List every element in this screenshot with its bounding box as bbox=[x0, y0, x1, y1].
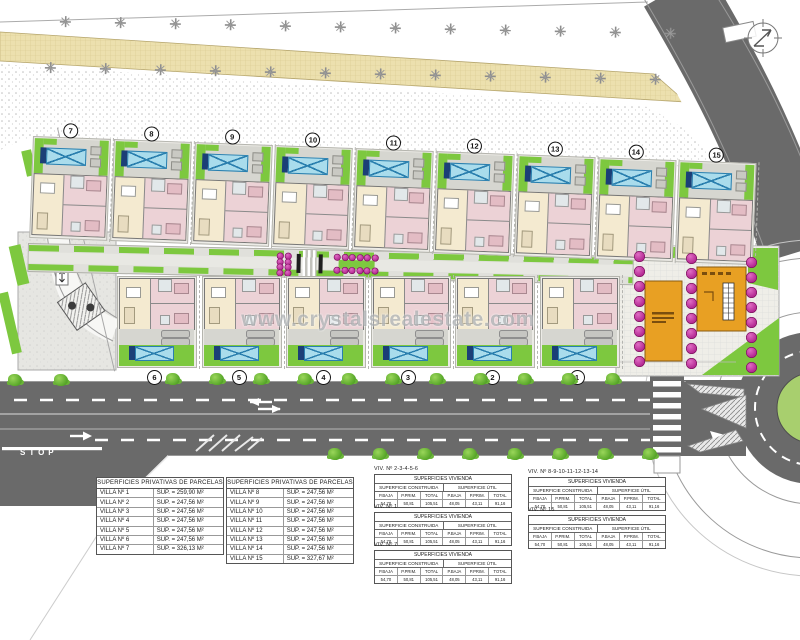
surface-cell: SUP. = 326,13 M² bbox=[154, 545, 223, 553]
bed bbox=[259, 283, 274, 294]
bush-icon bbox=[474, 373, 488, 385]
bush-icon bbox=[598, 448, 612, 460]
pool-icon bbox=[207, 154, 248, 172]
furniture bbox=[201, 188, 216, 200]
tree-icon bbox=[485, 70, 496, 81]
group-header: SUPERFICIE CONSTRUIDA bbox=[529, 525, 598, 532]
patio-furniture bbox=[413, 158, 424, 167]
bed bbox=[327, 229, 342, 241]
flowering-tree-icon bbox=[746, 272, 757, 283]
flowering-tree-icon bbox=[746, 257, 757, 268]
bush-row bbox=[328, 448, 688, 460]
furniture bbox=[295, 287, 310, 298]
table-title: SUPERFICIES VIVIENDA bbox=[375, 475, 511, 484]
table-title: SUPERFICIES PRIVATIVAS DE PARCELAS bbox=[97, 478, 223, 489]
surface-cell: SUP. = 247,56 M² bbox=[284, 498, 353, 506]
bed bbox=[165, 223, 180, 235]
tree-icon bbox=[320, 67, 331, 78]
surface-cell: SUP. = 247,56 M² bbox=[154, 517, 223, 525]
bathroom bbox=[393, 234, 403, 244]
table-row: VILLA Nº 14 SUP. = 247,56 M² bbox=[227, 544, 353, 553]
tree-icon bbox=[45, 62, 56, 73]
tree-icon bbox=[665, 28, 676, 39]
bush-icon bbox=[430, 373, 444, 385]
bed bbox=[343, 283, 358, 294]
value-cell: 54,70 bbox=[529, 541, 552, 548]
flowering-tree-icon bbox=[341, 254, 348, 261]
bed bbox=[409, 192, 424, 204]
villa-number: 14 bbox=[632, 147, 641, 156]
bed bbox=[597, 283, 612, 294]
furniture bbox=[440, 227, 452, 244]
villa-floorplan bbox=[354, 185, 430, 250]
flowering-tree-icon bbox=[686, 313, 697, 324]
bathroom bbox=[411, 279, 425, 292]
group-header: SUPERFICIE ÚTIL bbox=[444, 484, 512, 491]
villa-number: 11 bbox=[390, 138, 398, 147]
tree-icon bbox=[335, 21, 346, 32]
bed bbox=[569, 238, 584, 250]
flowering-tree-icon bbox=[634, 281, 645, 292]
bathroom bbox=[474, 191, 488, 205]
col-header: P.BAJA bbox=[529, 533, 552, 540]
table-label: VIV. Nº 15 bbox=[528, 507, 666, 513]
bathroom bbox=[70, 221, 80, 231]
col-header: TOTAL bbox=[421, 492, 444, 499]
lawn-strip bbox=[373, 362, 448, 366]
tree-icon bbox=[610, 27, 621, 38]
pool-icon bbox=[611, 169, 652, 187]
villa-name-cell: VILLA Nº 9 bbox=[227, 498, 284, 506]
bed bbox=[247, 186, 262, 198]
lawn-strip bbox=[367, 151, 380, 157]
furniture bbox=[279, 221, 291, 238]
flowering-tree-icon bbox=[746, 317, 757, 328]
bathroom bbox=[555, 240, 565, 250]
villa-name-cell: VILLA Nº 10 bbox=[227, 508, 284, 516]
wall-line bbox=[405, 303, 448, 304]
furniture bbox=[686, 207, 701, 219]
surface-cell: SUP. = 247,56 M² bbox=[284, 527, 353, 535]
col-header: P.BAJA bbox=[597, 495, 620, 502]
table-group-headers: SUPERFICIE CONSTRUIDA SUPERFICIE ÚTIL bbox=[529, 487, 665, 495]
path-crossing bbox=[302, 250, 317, 277]
bathroom bbox=[232, 182, 246, 196]
furniture bbox=[602, 233, 614, 250]
villa-unit: 15 bbox=[675, 160, 757, 265]
villa-floorplan bbox=[112, 176, 188, 241]
tree-icon bbox=[555, 26, 566, 37]
bush-icon bbox=[463, 448, 477, 460]
table-label: VIV. Nº 1 bbox=[374, 504, 512, 510]
table-title: SUPERFICIES VIVIENDA bbox=[529, 478, 665, 487]
pool-icon bbox=[389, 346, 428, 361]
table-col-headers: P.BAJA P.PRIM. TOTAL P.BAJA P.PRIM. TOTA… bbox=[529, 533, 665, 541]
patio-furniture bbox=[655, 179, 666, 188]
villa-name-cell: VILLA Nº 3 bbox=[97, 508, 154, 516]
pool-icon bbox=[304, 346, 343, 361]
patio-furniture bbox=[413, 170, 424, 179]
bathroom bbox=[555, 194, 569, 208]
patio-furniture bbox=[171, 149, 182, 158]
villa-number: 7 bbox=[68, 126, 73, 135]
group-header: SUPERFICIE CONSTRUIDA bbox=[529, 487, 598, 494]
villa-name-cell: VILLA Nº 8 bbox=[227, 489, 284, 497]
bush-icon bbox=[386, 373, 400, 385]
flowering-tree-icon bbox=[746, 347, 757, 358]
lawn-strip bbox=[119, 362, 194, 366]
flower-column bbox=[634, 251, 645, 371]
table-row: VILLA Nº 1 SUP. = 259,90 M² bbox=[97, 489, 223, 497]
col-header: TOTAL bbox=[643, 533, 665, 540]
col-header: P.PRIM. bbox=[466, 492, 489, 499]
flowering-tree-icon bbox=[634, 311, 645, 322]
table-col-headers: P.BAJA P.PRIM. TOTAL P.BAJA P.PRIM. TOTA… bbox=[375, 568, 511, 576]
villa-number: 12 bbox=[470, 141, 479, 150]
furniture bbox=[524, 200, 539, 212]
bathroom bbox=[327, 279, 341, 292]
bush-icon bbox=[508, 448, 522, 460]
villa-name-cell: VILLA Nº 12 bbox=[227, 527, 284, 535]
value-cell: 43,11 bbox=[620, 541, 643, 548]
pool-icon bbox=[558, 346, 597, 361]
lawn-strip bbox=[205, 144, 218, 150]
lawn-strip bbox=[124, 141, 137, 147]
vivienda-table: VIV. Nº 7 SUPERFICIES VIVIENDA SUPERFICI… bbox=[374, 542, 512, 584]
villa-name-cell: VILLA Nº 11 bbox=[227, 517, 284, 525]
value-cell: 105,51 bbox=[575, 541, 598, 548]
bush-icon bbox=[254, 373, 268, 385]
tree-icon bbox=[265, 66, 276, 77]
surface-cell: SUP. = 247,56 M² bbox=[284, 489, 353, 497]
bush-icon bbox=[373, 448, 387, 460]
villa-number-badge: 8 bbox=[144, 126, 160, 142]
bathroom bbox=[393, 188, 407, 202]
group-header: SUPERFICIE CONSTRUIDA bbox=[375, 560, 444, 567]
table-title: SUPERFICIES VIVIENDA bbox=[375, 551, 511, 560]
flower-column bbox=[746, 257, 757, 377]
furniture bbox=[363, 194, 378, 206]
lawn-strip bbox=[690, 163, 703, 169]
flowering-tree-icon bbox=[686, 358, 697, 369]
vivienda-table: VIV. Nº 1 SUPERFICIES VIVIENDA SUPERFICI… bbox=[374, 504, 512, 546]
bathroom bbox=[716, 200, 730, 214]
villa-floorplan bbox=[435, 188, 511, 253]
flowering-tree-icon bbox=[356, 267, 363, 274]
group-header: SUPERFICIE ÚTIL bbox=[444, 522, 512, 529]
flowering-tree-icon bbox=[634, 296, 645, 307]
bathroom bbox=[313, 231, 323, 241]
villa-floorplan bbox=[274, 182, 350, 247]
patio-furniture bbox=[494, 161, 505, 170]
table-row: VILLA Nº 13 SUP. = 247,56 M² bbox=[227, 535, 353, 544]
bush-icon bbox=[518, 373, 532, 385]
villa-floorplan bbox=[516, 191, 592, 256]
patio-furniture bbox=[90, 146, 101, 155]
patio-furniture bbox=[494, 173, 505, 182]
villa-name-cell: VILLA Nº 2 bbox=[97, 498, 154, 506]
bed bbox=[651, 201, 666, 213]
tree-icon bbox=[540, 72, 551, 83]
col-header: P.PRIM. bbox=[552, 495, 575, 502]
tree-icon bbox=[170, 18, 181, 29]
wall-line bbox=[236, 303, 279, 304]
bush-row bbox=[166, 373, 650, 385]
bush-icon bbox=[54, 374, 68, 386]
villa-number: 9 bbox=[230, 132, 235, 141]
bathroom bbox=[313, 185, 327, 199]
community-building bbox=[645, 281, 682, 361]
villa-name-cell: VILLA Nº 4 bbox=[97, 517, 154, 525]
table-row: VILLA Nº 4 SUP. = 247,56 M² bbox=[97, 516, 223, 525]
tree-icon bbox=[100, 63, 111, 74]
col-header: P.BAJA bbox=[597, 533, 620, 540]
bush-icon bbox=[8, 374, 22, 386]
col-header: P.BAJA bbox=[375, 492, 398, 499]
patio-furniture bbox=[575, 164, 586, 173]
value-cell: 50,81 bbox=[398, 576, 421, 583]
surface-cell: SUP. = 247,56 M² bbox=[284, 517, 353, 525]
tree-icon bbox=[430, 69, 441, 80]
bed bbox=[174, 283, 189, 294]
col-header: TOTAL bbox=[489, 492, 511, 499]
villa-name-cell: VILLA Nº 7 bbox=[97, 545, 154, 553]
flowering-tree-icon bbox=[634, 251, 645, 262]
value-cell: 54,70 bbox=[375, 576, 398, 583]
bathroom bbox=[151, 225, 161, 235]
bathroom bbox=[242, 279, 256, 292]
furniture bbox=[124, 307, 135, 324]
pool-icon bbox=[473, 346, 512, 361]
table-group-headers: SUPERFICIE CONSTRUIDA SUPERFICIE ÚTIL bbox=[375, 484, 511, 492]
tree-icon bbox=[650, 74, 661, 85]
furniture bbox=[444, 197, 459, 209]
villa-number: 8 bbox=[149, 129, 154, 138]
flowering-tree-icon bbox=[333, 267, 340, 274]
furniture bbox=[121, 185, 136, 197]
furniture bbox=[549, 287, 564, 298]
col-header: TOTAL bbox=[489, 530, 511, 537]
flowering-tree-icon bbox=[349, 254, 356, 261]
lawn-strip bbox=[528, 157, 541, 163]
villa-unit: 7 bbox=[29, 136, 111, 241]
lawn-strip bbox=[286, 148, 299, 154]
flower-column bbox=[686, 253, 697, 373]
table-row: VILLA Nº 6 SUP. = 247,56 M² bbox=[97, 535, 223, 544]
bed bbox=[732, 204, 747, 216]
flowering-tree-icon bbox=[372, 255, 379, 262]
villa-unit: 8 bbox=[110, 139, 192, 244]
patio-furniture bbox=[332, 167, 343, 176]
bed bbox=[512, 283, 527, 294]
bed bbox=[167, 183, 182, 195]
furniture bbox=[605, 204, 620, 216]
col-header: P.BAJA bbox=[375, 568, 398, 575]
furniture bbox=[198, 218, 210, 235]
furniture bbox=[282, 191, 297, 203]
bed bbox=[246, 226, 261, 238]
tree-icon bbox=[60, 16, 71, 27]
flowering-tree-icon bbox=[634, 326, 645, 337]
villa-number-badge: 9 bbox=[224, 129, 240, 145]
tree-icon bbox=[500, 24, 511, 35]
wall-line bbox=[320, 303, 363, 304]
bathroom bbox=[496, 279, 510, 292]
table-values: 54,70 50,81 105,51 48,05 43,11 91,16 bbox=[529, 541, 665, 548]
table-row: VILLA Nº 15 SUP. = 327,67 M² bbox=[227, 554, 353, 563]
table-title: SUPERFICIES PRIVATIVAS DE PARCELAS bbox=[227, 478, 353, 489]
lawn-strip bbox=[542, 362, 617, 366]
villa-floorplan bbox=[193, 179, 269, 244]
col-header: P.PRIM. bbox=[620, 533, 643, 540]
furniture bbox=[380, 287, 395, 298]
lawn-strip bbox=[288, 362, 363, 366]
villa-floorplan bbox=[31, 173, 107, 238]
villa-unit: 9 bbox=[191, 142, 273, 247]
lawn-strip bbox=[204, 362, 279, 366]
tree-icon bbox=[595, 73, 606, 84]
bush-icon bbox=[553, 448, 567, 460]
patio-furniture bbox=[171, 161, 182, 170]
tree-icon bbox=[115, 17, 126, 28]
flowering-tree-icon bbox=[364, 267, 371, 274]
col-header: P.PRIM. bbox=[466, 568, 489, 575]
value-cell: 48,05 bbox=[597, 541, 620, 548]
col-header: TOTAL bbox=[643, 495, 665, 502]
col-header: P.PRIM. bbox=[466, 530, 489, 537]
watermark: www.crystalsrealestate.com bbox=[148, 308, 628, 332]
tree-icon bbox=[280, 20, 291, 31]
parcel-table-1: SUPERFICIES PRIVATIVAS DE PARCELAS VILLA… bbox=[96, 477, 224, 555]
villa-number: 10 bbox=[309, 135, 318, 144]
bush-icon bbox=[342, 373, 356, 385]
group-header: SUPERFICIE CONSTRUIDA bbox=[375, 522, 444, 529]
bed bbox=[490, 195, 505, 207]
col-header: P.PRIM. bbox=[552, 533, 575, 540]
table-row: VILLA Nº 10 SUP. = 247,56 M² bbox=[227, 507, 353, 516]
flowering-tree-icon bbox=[686, 328, 697, 339]
wall-line bbox=[574, 303, 617, 304]
col-header: P.BAJA bbox=[443, 530, 466, 537]
lawn-strip bbox=[447, 154, 460, 160]
bed bbox=[488, 235, 503, 247]
col-header: P.BAJA bbox=[529, 495, 552, 502]
patio-furniture bbox=[736, 170, 747, 179]
table-row: VILLA Nº 3 SUP. = 247,56 M² bbox=[97, 507, 223, 516]
flowering-tree-icon bbox=[746, 362, 757, 373]
villa-name-cell: VILLA Nº 13 bbox=[227, 536, 284, 544]
patio-furniture bbox=[656, 167, 667, 176]
villa-number-badge: 6 bbox=[147, 370, 162, 385]
villa-name-cell: VILLA Nº 5 bbox=[97, 527, 154, 535]
flowering-tree-icon bbox=[364, 254, 371, 261]
villa-number-badge: 14 bbox=[628, 144, 644, 160]
villa-number: 13 bbox=[551, 144, 560, 153]
table-group-headers: SUPERFICIE CONSTRUIDA SUPERFICIE ÚTIL bbox=[529, 525, 665, 533]
bathroom bbox=[636, 197, 650, 211]
bed bbox=[428, 283, 443, 294]
surface-cell: SUP. = 259,90 M² bbox=[154, 489, 223, 497]
surface-cell: SUP. = 247,56 M² bbox=[154, 498, 223, 506]
lawn-strip bbox=[44, 138, 57, 144]
villa-name-cell: VILLA Nº 1 bbox=[97, 489, 154, 497]
tree-icon bbox=[375, 68, 386, 79]
table-col-headers: P.BAJA P.PRIM. TOTAL P.BAJA P.PRIM. TOTA… bbox=[375, 492, 511, 500]
flowering-tree-icon bbox=[746, 287, 757, 298]
flowering-tree-icon bbox=[634, 356, 645, 367]
lawn-strip bbox=[609, 160, 622, 166]
villa-floorplan bbox=[596, 194, 672, 259]
flowering-tree-icon bbox=[371, 267, 378, 274]
bed bbox=[570, 198, 585, 210]
bush-icon bbox=[166, 373, 180, 385]
bathroom bbox=[158, 279, 172, 292]
group-header: SUPERFICIE ÚTIL bbox=[444, 560, 512, 567]
pool-icon bbox=[127, 151, 168, 169]
bathroom bbox=[70, 175, 84, 189]
furniture bbox=[521, 230, 533, 247]
table-values: 54,70 50,81 105,51 48,05 43,11 91,16 bbox=[375, 576, 511, 583]
patio-furniture bbox=[333, 155, 344, 164]
surface-cell: SUP. = 247,56 M² bbox=[284, 536, 353, 544]
bed bbox=[328, 189, 343, 201]
bush-icon bbox=[210, 373, 224, 385]
surface-cell: SUP. = 327,67 M² bbox=[284, 555, 353, 563]
bush-icon bbox=[562, 373, 576, 385]
stop-road-marking: STOP bbox=[20, 448, 58, 457]
flowering-tree-icon bbox=[349, 267, 356, 274]
table-row: VILLA Nº 9 SUP. = 247,56 M² bbox=[227, 497, 353, 506]
col-header: P.PRIM. bbox=[398, 530, 421, 537]
value-cell: 43,11 bbox=[466, 576, 489, 583]
furniture bbox=[40, 182, 55, 194]
wall-line bbox=[489, 303, 532, 304]
flowering-tree-icon bbox=[356, 254, 363, 261]
bathroom bbox=[151, 178, 165, 192]
bathroom bbox=[716, 246, 726, 256]
table-label: VIV. Nº 7 bbox=[374, 542, 512, 548]
pool-icon bbox=[288, 157, 329, 175]
patio-furniture bbox=[252, 152, 263, 161]
tree-icon bbox=[155, 64, 166, 75]
table-col-headers: P.BAJA P.PRIM. TOTAL P.BAJA P.PRIM. TOTA… bbox=[375, 530, 511, 538]
bed bbox=[86, 180, 101, 192]
villa-name-cell: VILLA Nº 15 bbox=[227, 555, 284, 563]
vivienda-table: VIV. Nº 2-3-4-5-6 SUPERFICIES VIVIENDA S… bbox=[374, 466, 512, 508]
pool-icon bbox=[369, 160, 410, 178]
surface-cell: SUP. = 247,56 M² bbox=[154, 508, 223, 516]
bed bbox=[407, 232, 422, 244]
group-header: SUPERFICIE CONSTRUIDA bbox=[375, 484, 444, 491]
group-header: SUPERFICIE ÚTIL bbox=[598, 487, 666, 494]
table-col-headers: P.BAJA P.PRIM. TOTAL P.BAJA P.PRIM. TOTA… bbox=[529, 495, 665, 503]
patio-furniture bbox=[90, 158, 101, 167]
furniture bbox=[211, 287, 226, 298]
value-cell: 48,05 bbox=[443, 576, 466, 583]
table-group-headers: SUPERFICIE CONSTRUIDA SUPERFICIE ÚTIL bbox=[375, 522, 511, 530]
col-header: P.BAJA bbox=[375, 530, 398, 537]
pool-icon bbox=[135, 346, 174, 361]
flowering-tree-icon bbox=[634, 266, 645, 277]
col-header: P.PRIM. bbox=[398, 568, 421, 575]
furniture bbox=[126, 287, 141, 298]
furniture bbox=[37, 212, 49, 229]
vivienda-table: VIV. Nº 15 SUPERFICIES VIVIENDA SUPERFIC… bbox=[528, 507, 666, 549]
furniture bbox=[359, 224, 371, 241]
col-header: TOTAL bbox=[575, 533, 598, 540]
tree-icon bbox=[210, 65, 221, 76]
patio-furniture bbox=[574, 176, 585, 185]
